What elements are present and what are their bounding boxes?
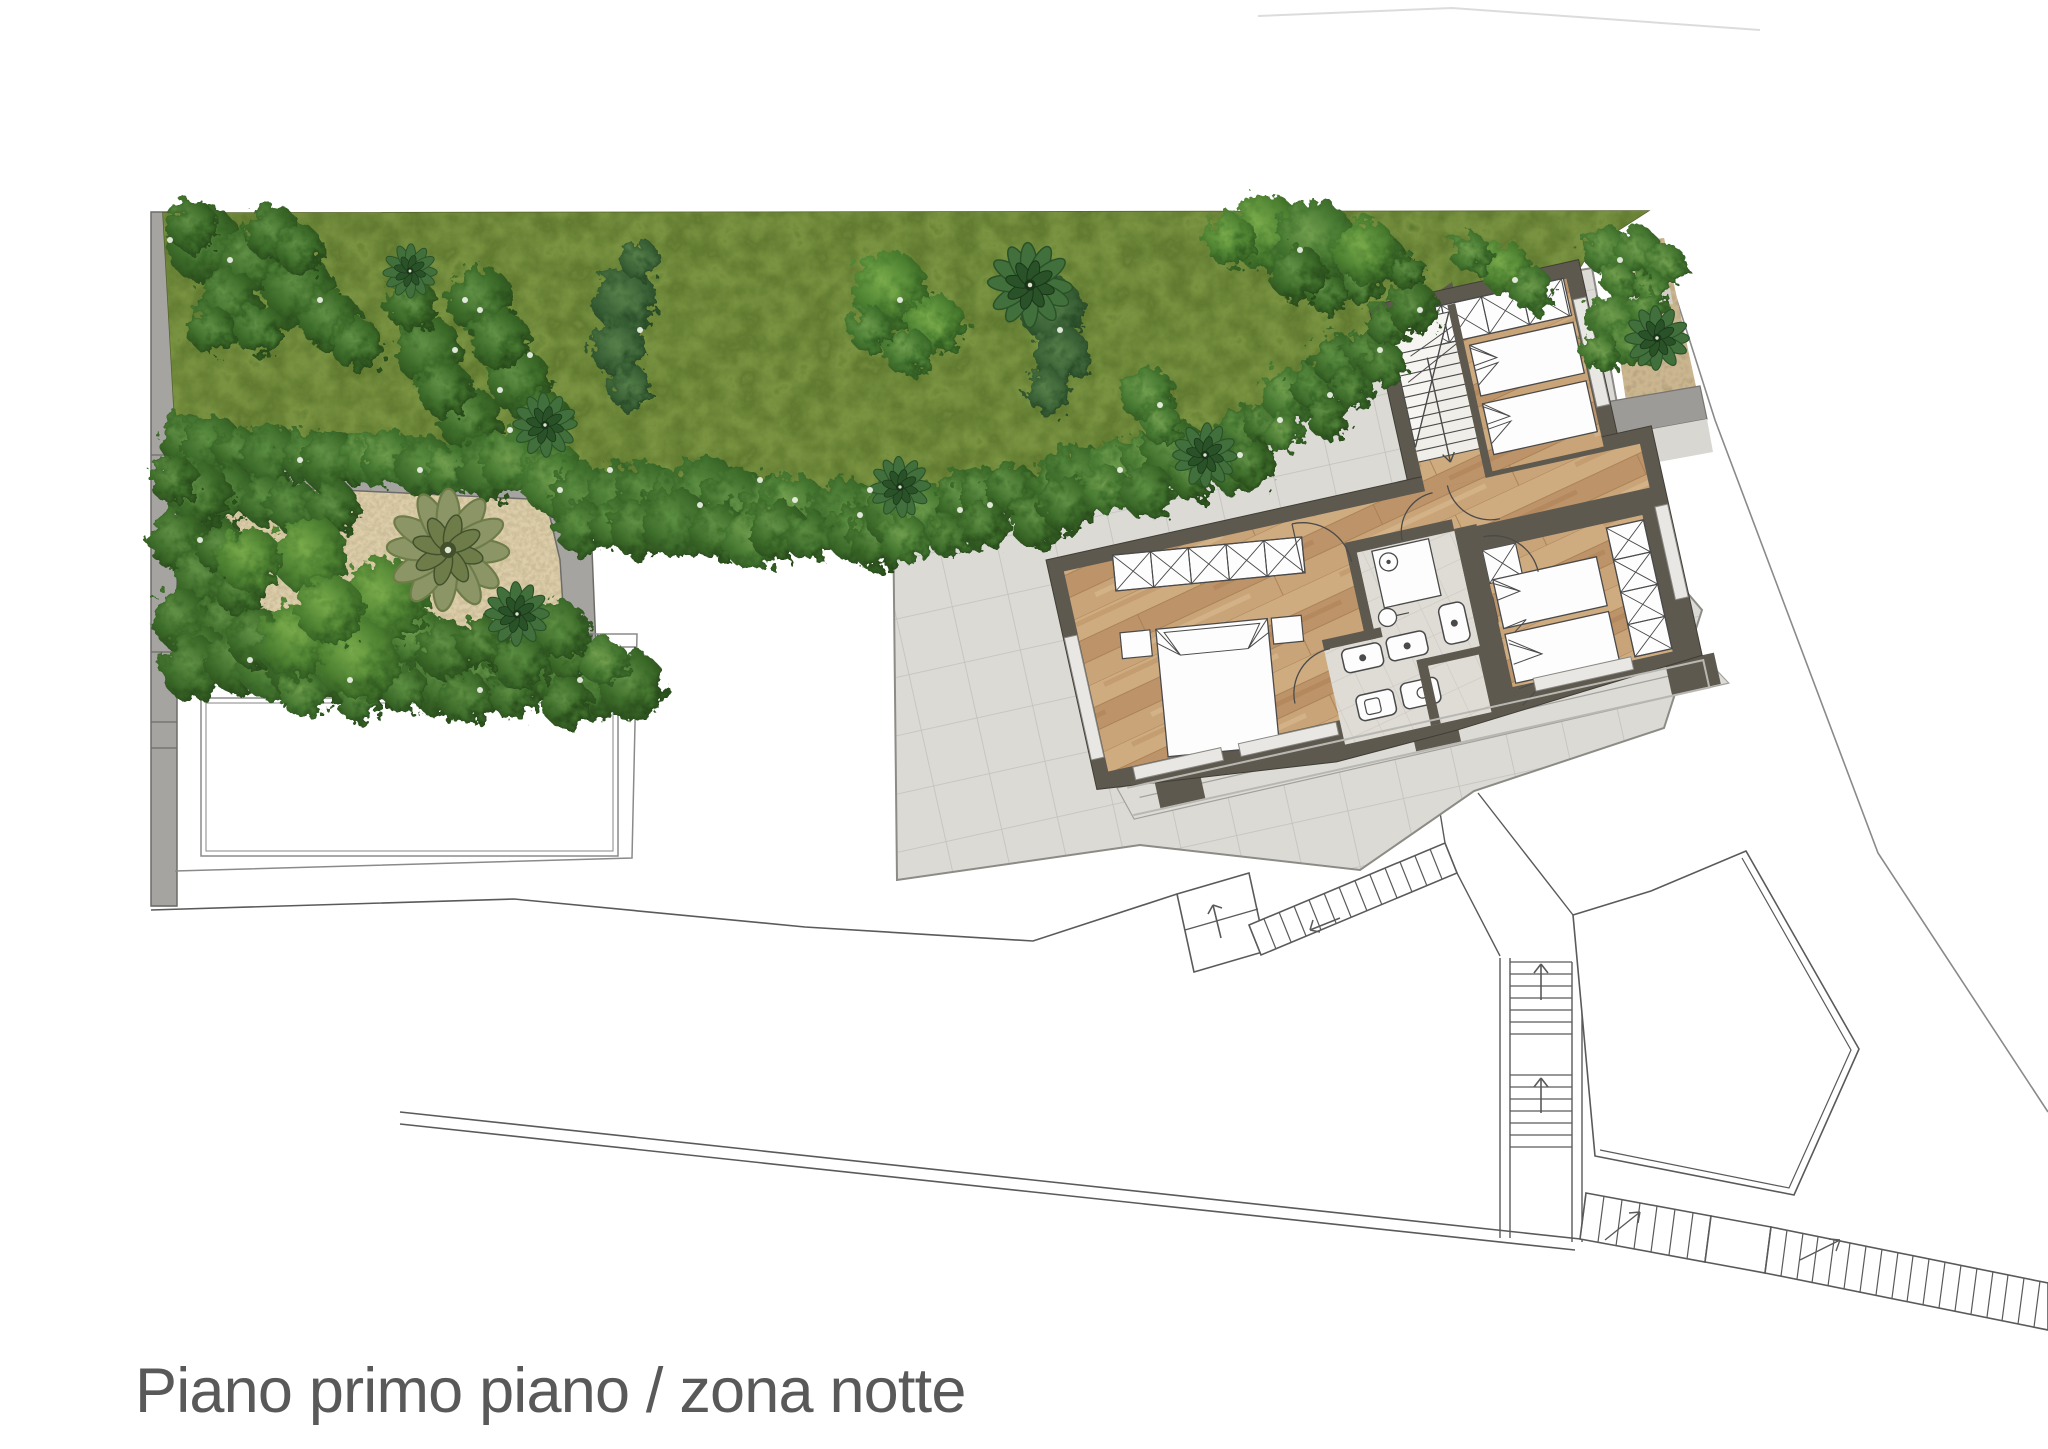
- svg-text:Piano primo piano / zona notte: Piano primo piano / zona notte: [135, 1356, 966, 1426]
